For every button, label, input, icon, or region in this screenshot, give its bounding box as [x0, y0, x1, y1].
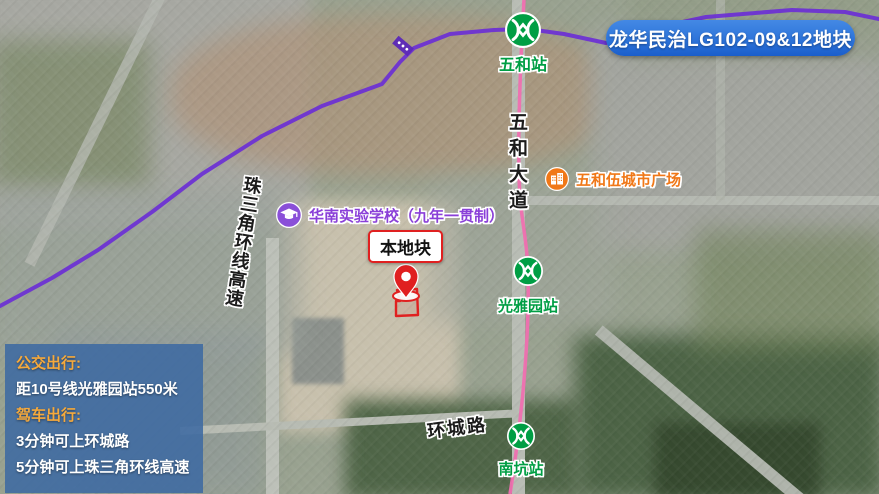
metro-icon — [513, 256, 543, 286]
metro-icon — [505, 12, 541, 48]
road-label-prd-ring-expressway: 珠三角环线高速 — [219, 174, 265, 309]
expressway-shield — [392, 36, 414, 57]
road-surface-diagonal-southeast — [595, 325, 817, 494]
road-label-wuhe-avenue: 五和大道 — [503, 112, 530, 216]
plot-label: 本地块 — [368, 230, 443, 263]
graduation-cap-icon — [276, 202, 302, 228]
transit-info-box: 公交出行: 距10号线光雅园站550米 驾车出行: 3分钟可上环城路 5分钟可上… — [5, 344, 203, 493]
road-surface-diagonal-northwest — [25, 0, 171, 267]
poi-label: 华南实验学校（九年一贯制） — [309, 205, 504, 226]
buildings-icon — [545, 167, 569, 191]
pin-hole — [401, 272, 411, 282]
metro-icon — [507, 422, 535, 450]
satellite-patch-gray-square — [292, 318, 344, 384]
info-line-huancheng: 3分钟可上环城路 — [16, 434, 192, 449]
pin-halo-ellipse — [393, 291, 419, 301]
station-marker-wuhe: 五和站 — [481, 12, 565, 75]
poi-school: 华南实验学校（九年一贯制） — [276, 202, 504, 228]
page-title: 龙华民治LG102-09&12地块 — [609, 25, 852, 52]
station-label: 南坑站 — [498, 458, 543, 479]
station-label: 五和站 — [499, 51, 547, 75]
satellite-patch-city-gray — [0, 0, 310, 230]
satellite-patch-green-rightmid — [695, 228, 879, 353]
info-heading-bus: 公交出行: — [16, 356, 192, 371]
station-label: 光雅园站 — [498, 295, 558, 316]
road-surface-horizontal-east — [520, 196, 879, 205]
station-marker-nankeng: 南坑站 — [479, 422, 563, 479]
satellite-patch-pond — [655, 423, 820, 494]
poi-mall: 五和伍城市广场 — [545, 167, 681, 191]
info-heading-drive: 驾车出行: — [16, 408, 192, 423]
location-pin-icon — [394, 265, 418, 299]
station-marker-guangyayuan: 光雅园站 — [486, 256, 570, 316]
info-line-expressway: 5分钟可上珠三角环线高速 — [16, 460, 192, 475]
satellite-patch-forest-bottomright — [575, 335, 879, 494]
info-line-metro-distance: 距10号线光雅园站550米 — [16, 382, 192, 397]
satellite-patch-green-left — [0, 40, 150, 190]
satellite-map: 五和大道 珠三角环线高速 环城路 五和站 光雅园站 南坑站 华南实验学校（九年一… — [0, 0, 879, 494]
poi-label: 五和伍城市广场 — [576, 169, 681, 190]
satellite-patch-city-right — [590, 30, 879, 250]
title-banner: 龙华民治LG102-09&12地块 — [606, 20, 855, 56]
road-surface-vertical-west — [266, 238, 279, 494]
plot-boundary — [396, 289, 418, 316]
